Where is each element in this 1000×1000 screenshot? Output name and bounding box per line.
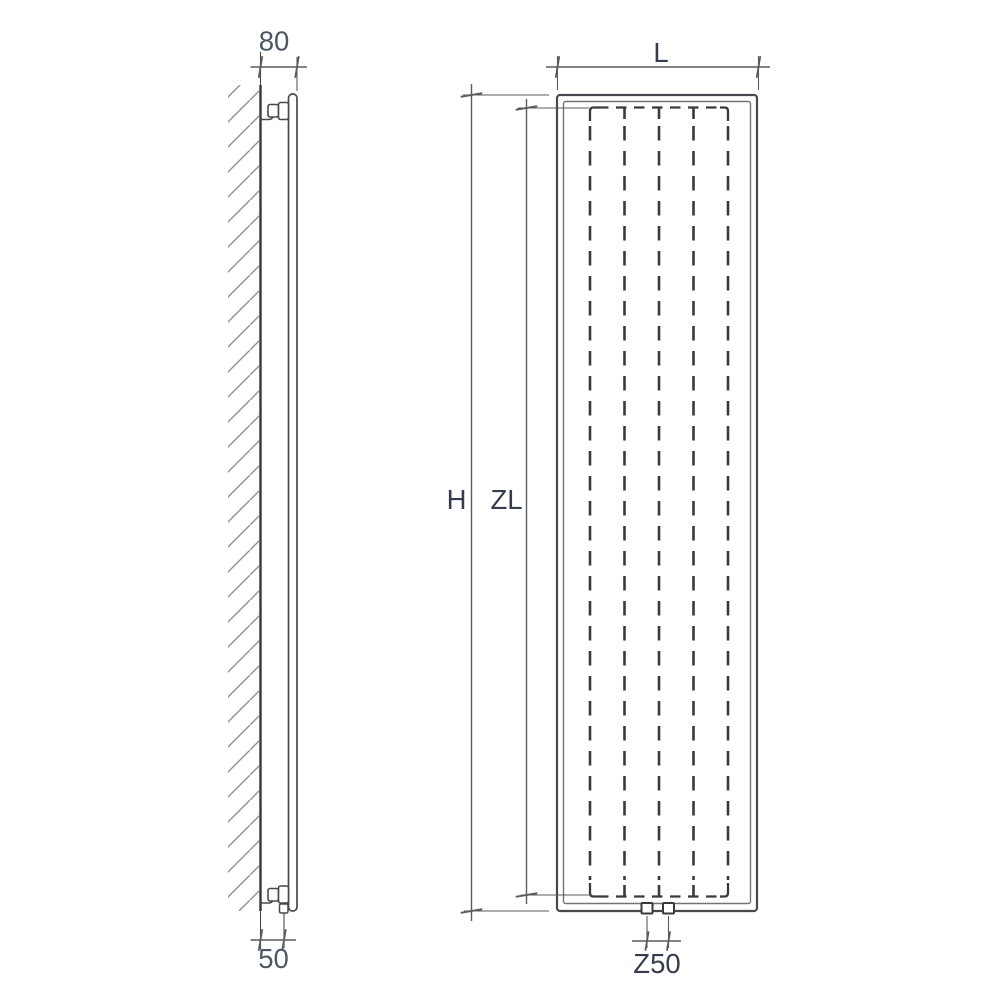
wall-hatch [228, 85, 259, 911]
valve-left [642, 903, 653, 914]
dim-ZL-label: ZL [490, 484, 522, 515]
dim-80-label: 80 [259, 26, 290, 57]
radiator-dimension-diagram: 80 50 [0, 0, 1000, 1000]
dim-width: L [546, 37, 770, 90]
front-view: L H ZL Z50 [447, 37, 770, 979]
dim-H-label: H [447, 484, 467, 515]
dim-50-label: 50 [258, 943, 289, 974]
top-bracket-clip [279, 103, 289, 120]
radiator-front-inner-outline [564, 102, 751, 904]
top-right-corner-hook [720, 108, 728, 122]
bottom-bracket-clip [279, 886, 289, 903]
dim-element-height: ZL [490, 99, 589, 904]
bottom-bracket [261, 886, 289, 913]
pipe-connection-stub [280, 904, 289, 913]
bottom-bracket-block [268, 889, 279, 902]
top-bracket-block [268, 105, 279, 118]
dim-Z50-label: Z50 [633, 948, 680, 979]
side-view: 80 50 [228, 26, 307, 975]
bottom-right-corner-hook [720, 883, 728, 897]
dim-connection-spacing: Z50 [632, 916, 681, 979]
dim-wall-offset: 80 [251, 26, 308, 92]
heating-channels [590, 108, 728, 897]
bottom-left-corner-hook [590, 883, 598, 897]
top-bracket [261, 103, 289, 120]
top-left-corner-hook [590, 108, 598, 122]
dim-pipe-offset: 50 [251, 913, 297, 974]
valve-right [663, 903, 674, 914]
dim-L-label: L [653, 37, 668, 68]
radiator-panel-side [289, 94, 298, 911]
